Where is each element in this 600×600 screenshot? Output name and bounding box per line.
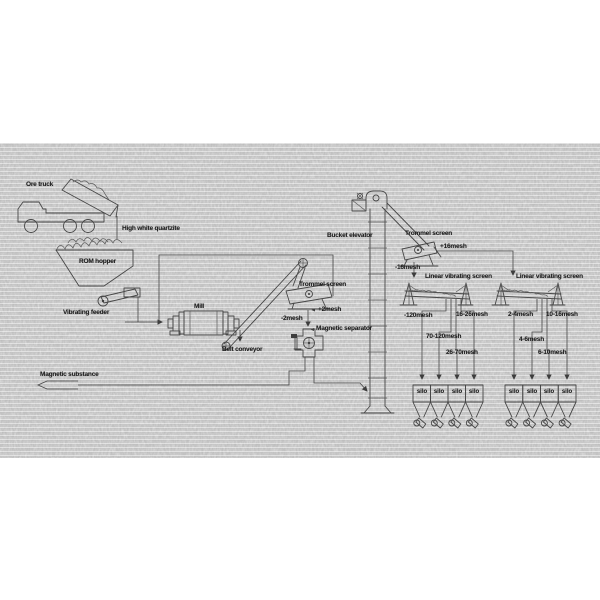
- silo-label: silo: [558, 389, 576, 396]
- flowsheet-diagram: Ore truck High white quartzite ROM hoppe…: [0, 0, 600, 600]
- flow-to-bucket-elevator: [314, 357, 367, 391]
- label-magnetic-separator: Magnetic separator: [316, 325, 372, 332]
- label-mesh-4-6: 4-6mesh: [519, 336, 544, 343]
- vibrating-feeder-icon: [98, 288, 140, 306]
- silo-label: silo: [448, 389, 466, 396]
- label-linear-vibrating-screen-1: Linear vibrating screen: [425, 273, 492, 280]
- flow-lines: [38, 216, 567, 391]
- label-mill: Mill: [194, 303, 204, 310]
- magnetic-substance-arrow: [38, 381, 78, 389]
- bucket-elevator-icon: [352, 191, 429, 413]
- label-minus-2mesh: -2mesh: [281, 315, 303, 322]
- label-bucket-elevator: Bucket elevator: [327, 232, 372, 239]
- label-linear-vibrating-screen-2: Linear vibrating screen: [516, 273, 583, 280]
- label-mesh-70-120: 70-120mesh: [426, 333, 461, 340]
- label-ore-truck: Ore truck: [26, 181, 53, 188]
- trommel-screen-2-icon: [400, 242, 441, 266]
- label-plus-16mesh: +16mesh: [440, 243, 467, 250]
- label-trommel-screen-2: Trommel screen: [405, 230, 452, 237]
- flow-magnetic-substance: [78, 357, 305, 385]
- diagram-line-art: [0, 0, 600, 600]
- label-minus-16mesh: -16mesh: [395, 264, 420, 271]
- magnetic-separator-icon: [291, 329, 323, 357]
- label-trommel-screen-1: Trommel screen: [299, 281, 346, 288]
- linear-vibrating-screen-1-icon: [400, 283, 473, 305]
- silo-label: silo: [505, 389, 523, 396]
- silo-label: silo: [430, 389, 448, 396]
- silo-label: silo: [540, 389, 558, 396]
- label-mesh-16-26: 16-26mesh: [456, 311, 488, 318]
- label-mesh-6-10: 6-10mesh: [538, 349, 566, 356]
- label-mesh-10-16: 10-16mesh: [546, 311, 578, 318]
- silo-label: silo: [523, 389, 541, 396]
- label-rom-hopper: ROM hopper: [79, 258, 116, 265]
- silo-label: silo: [413, 389, 431, 396]
- label-vibrating-feeder: Vibrating feeder: [63, 309, 109, 316]
- label-mesh-neg-120: -120mesh: [404, 312, 432, 319]
- silo-label: silo: [465, 389, 483, 396]
- separator-leader-arrow: [311, 328, 315, 331]
- label-high-white-quartzite: High white quartzite: [122, 225, 180, 232]
- flow-plus16mesh: [437, 251, 513, 275]
- label-magnetic-substance: Magnetic substance: [40, 371, 99, 378]
- linear-vibrating-screen-2-icon: [492, 283, 565, 305]
- label-mesh-2-4: 2-4mesh: [508, 311, 533, 318]
- label-belt-conveyor: Belt conveyor: [222, 346, 262, 353]
- label-plus-2mesh: +2mesh: [318, 306, 341, 313]
- label-mesh-26-70: 26-70mesh: [446, 349, 478, 356]
- ball-mill-icon: [168, 311, 239, 335]
